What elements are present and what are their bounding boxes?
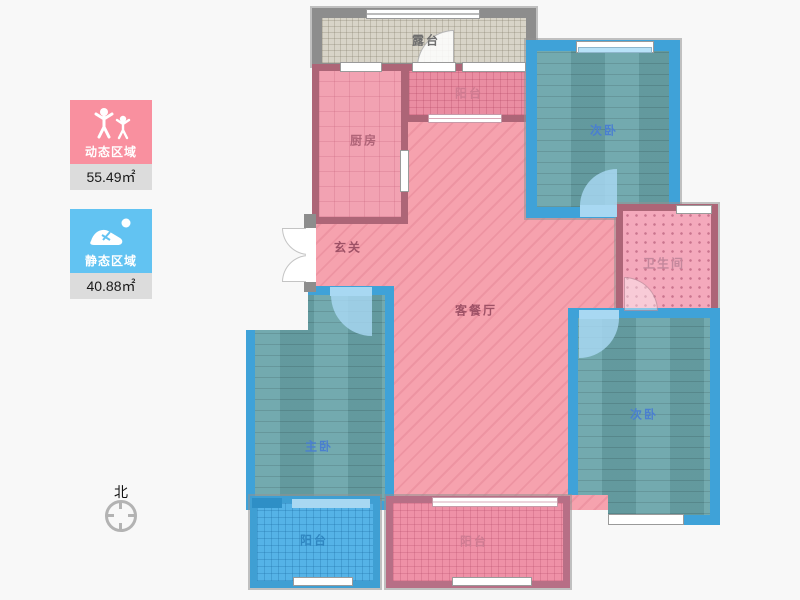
terrace-window <box>366 9 480 19</box>
living-dining-label: 客餐厅 <box>455 302 497 319</box>
floor-plan: 露台 厨房 阳台 次卧 玄关 客餐厅 卫生间 主卧 次卧 阳台 阳台 <box>0 0 800 600</box>
kitchen-sliding-door <box>400 150 409 192</box>
bedroom-bottom-right-door-gap <box>579 310 619 319</box>
bathroom-label: 卫生间 <box>643 255 685 272</box>
entrance-door-arc-top <box>282 228 309 255</box>
entrance-door-arc-bottom <box>282 255 309 282</box>
entrance-wall-top <box>304 214 316 228</box>
balcony-top-window-left <box>412 62 456 72</box>
entrance-opening <box>306 228 316 282</box>
bedroom-bottom-right-window <box>608 514 684 525</box>
balcony-bottom-left-window <box>293 577 353 586</box>
master-balcony-sliding-door <box>292 499 370 508</box>
balcony-top-label: 阳台 <box>455 85 483 102</box>
balcony-bottom-middle-label: 阳台 <box>460 533 488 550</box>
master-bedroom-label: 主卧 <box>305 438 333 455</box>
kitchen-window <box>340 62 382 72</box>
balcony-bottom-left-label: 阳台 <box>300 532 328 549</box>
bedroom-bottom-right-label: 次卧 <box>630 406 658 423</box>
master-bedroom-door-gap <box>330 287 372 296</box>
hallway-label: 玄关 <box>334 239 362 256</box>
balcony-bottom-middle-window <box>452 577 532 586</box>
terrace-label: 露台 <box>412 32 440 49</box>
bedroom-top-right-door-gap <box>580 205 617 217</box>
bedroom-top-right-window-glass <box>578 47 652 53</box>
entrance-wall-bottom <box>304 282 316 292</box>
kitchen-label: 厨房 <box>350 132 378 149</box>
bathroom-window <box>676 205 712 214</box>
balcony-wall-pier <box>252 498 282 508</box>
balcony-top-sliding-door <box>428 114 502 123</box>
bedroom-top-right-label: 次卧 <box>590 122 618 139</box>
balcony-bottom-middle-sliding-door <box>432 497 558 507</box>
balcony-top-window-right <box>462 62 526 72</box>
